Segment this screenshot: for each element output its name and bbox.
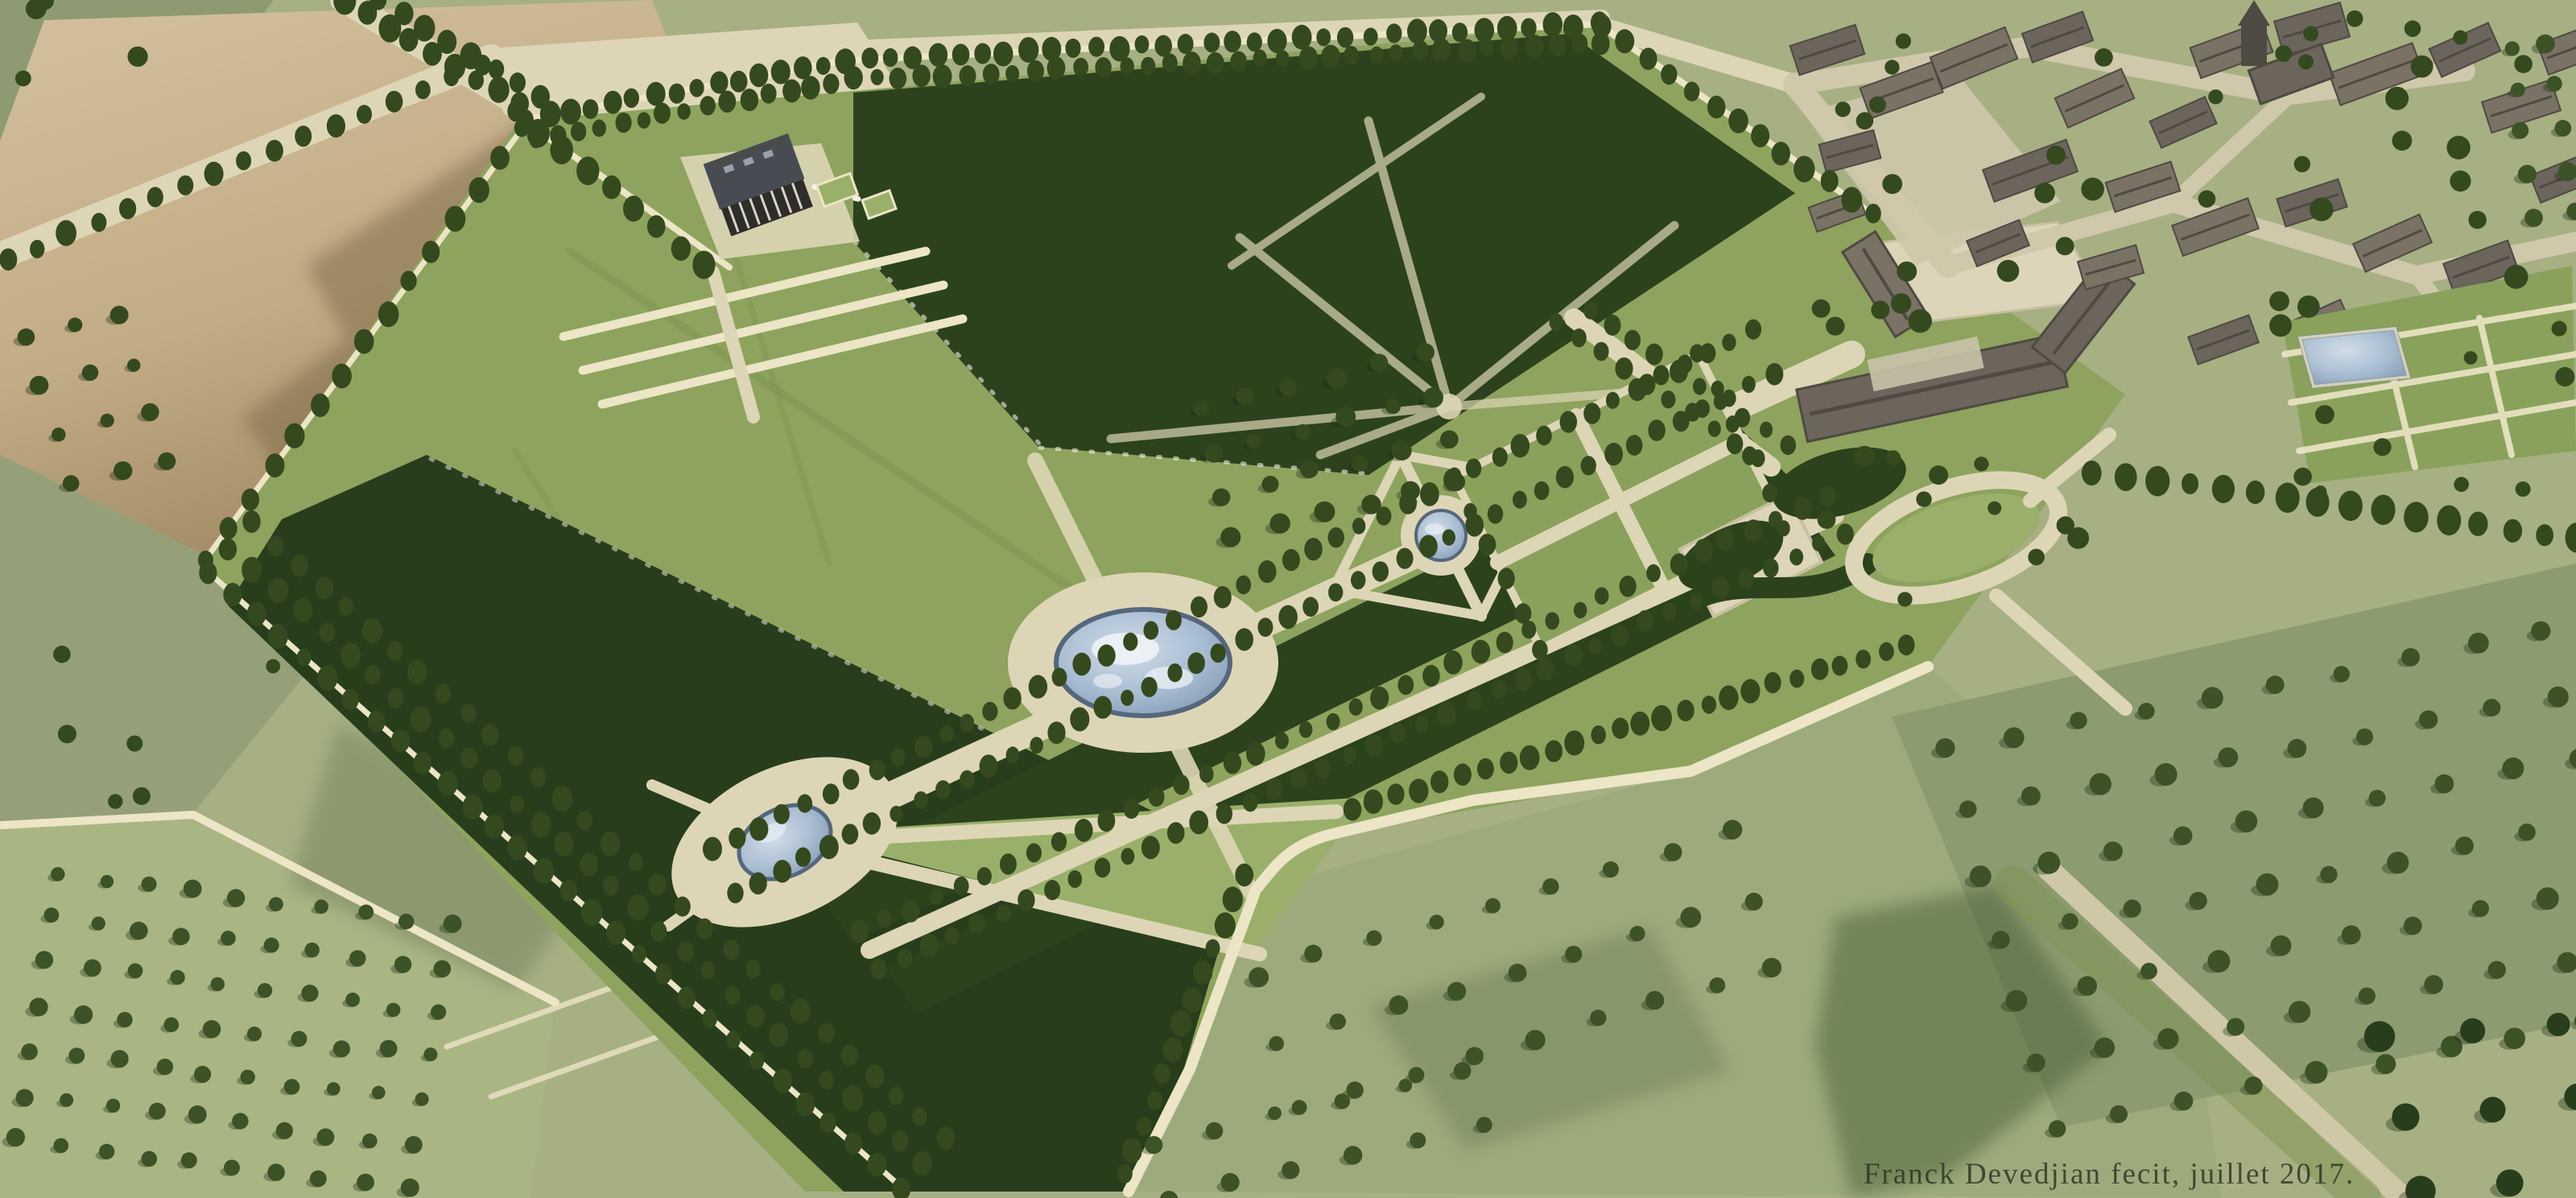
- artist-signature: Franck Devedjian fecit, juillet 2017.: [1864, 1158, 2355, 1191]
- grand-basin: [1008, 572, 1278, 753]
- estate-scene: Franck Devedjian fecit, juillet 2017.: [0, 0, 2576, 1198]
- aerial-garden-render: Franck Devedjian fecit, juillet 2017.: [0, 0, 2576, 1198]
